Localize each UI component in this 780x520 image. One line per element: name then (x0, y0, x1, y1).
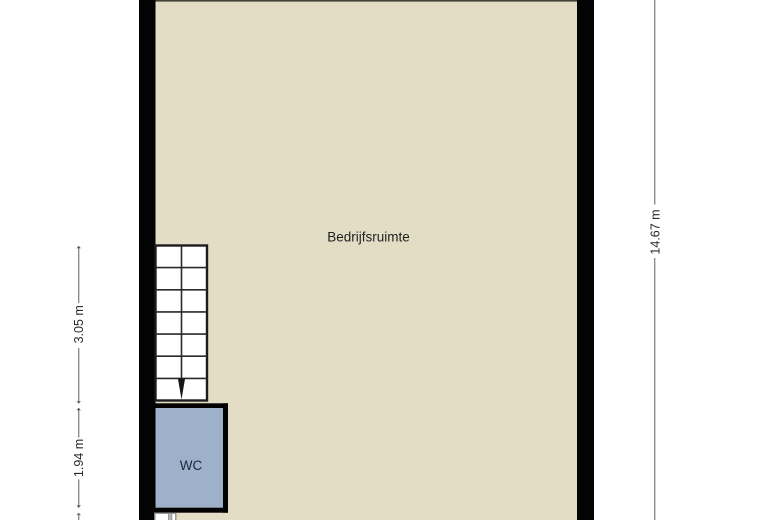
svg-text:WC: WC (180, 458, 203, 473)
svg-text:Bedrijfsruimte: Bedrijfsruimte (327, 229, 410, 244)
svg-text:1.94 m: 1.94 m (72, 439, 86, 477)
svg-text:14.67 m: 14.67 m (648, 209, 662, 254)
svg-text:3.05 m: 3.05 m (72, 305, 86, 343)
